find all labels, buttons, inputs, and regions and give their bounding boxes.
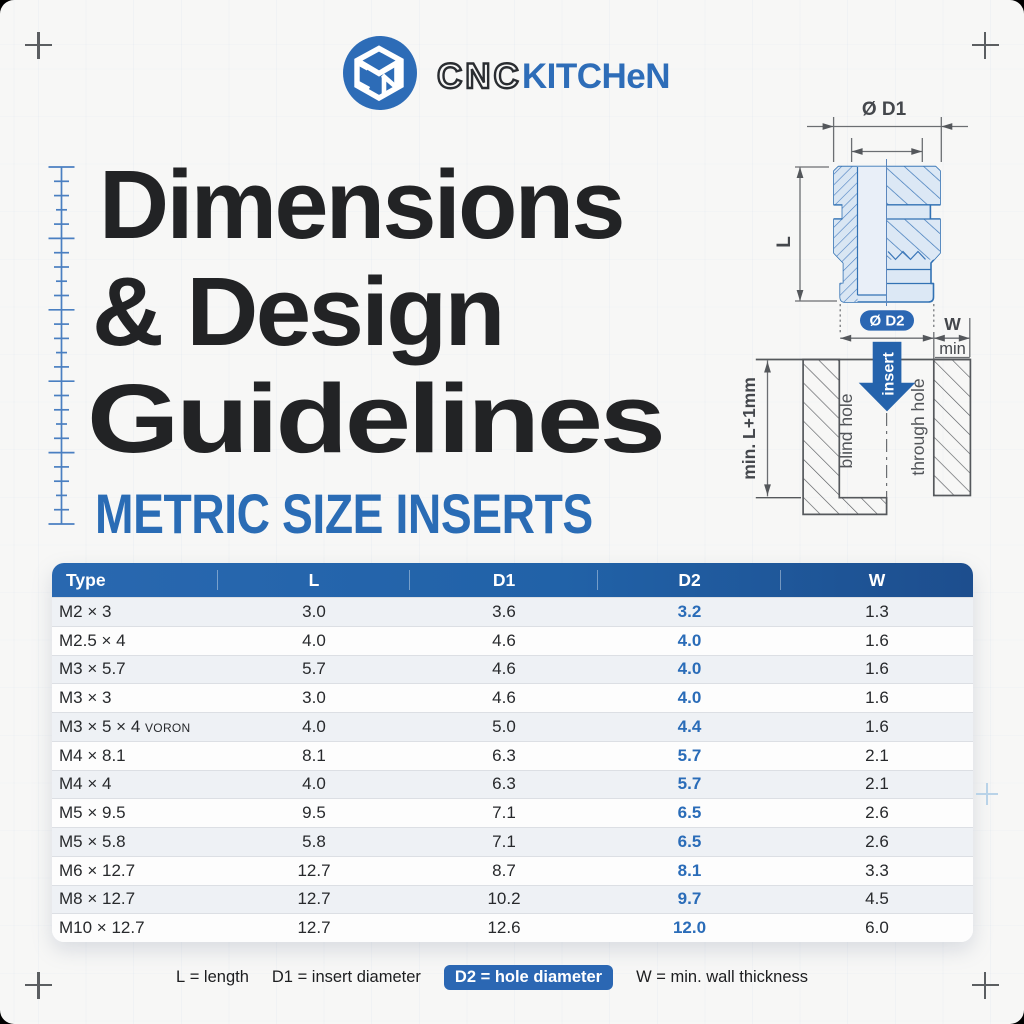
svg-text:insert: insert <box>881 352 898 396</box>
svg-text:W: W <box>944 314 961 334</box>
svg-text:Ø D2: Ø D2 <box>869 313 904 330</box>
svg-text:Ø D1: Ø D1 <box>862 99 907 120</box>
svg-text:min. L+1mm: min. L+1mm <box>739 377 759 480</box>
svg-text:min: min <box>939 340 966 358</box>
svg-text:L: L <box>774 236 795 248</box>
svg-text:blind hole: blind hole <box>836 394 856 469</box>
svg-text:through hole: through hole <box>908 378 928 475</box>
